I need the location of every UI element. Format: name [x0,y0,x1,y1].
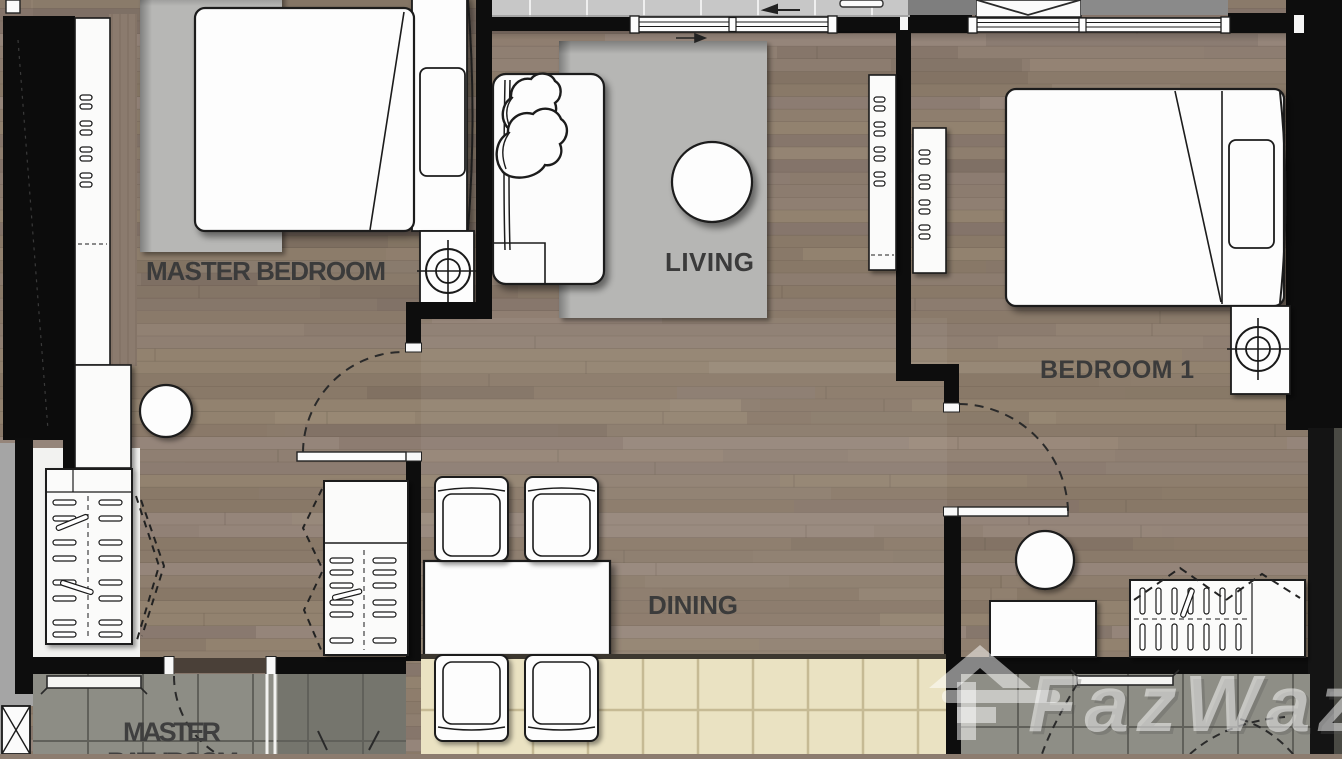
svg-text:LIVING: LIVING [665,247,754,277]
svg-text:MASTER BEDROOM: MASTER BEDROOM [146,256,386,286]
svg-text:DINING: DINING [648,590,738,620]
svg-text:BEDROOM 1: BEDROOM 1 [1040,356,1194,384]
svg-text:MASTER: MASTER [123,717,221,747]
svg-text:FazWaz: FazWaz [1028,659,1342,748]
svg-text:BATHROOM: BATHROOM [107,747,239,754]
